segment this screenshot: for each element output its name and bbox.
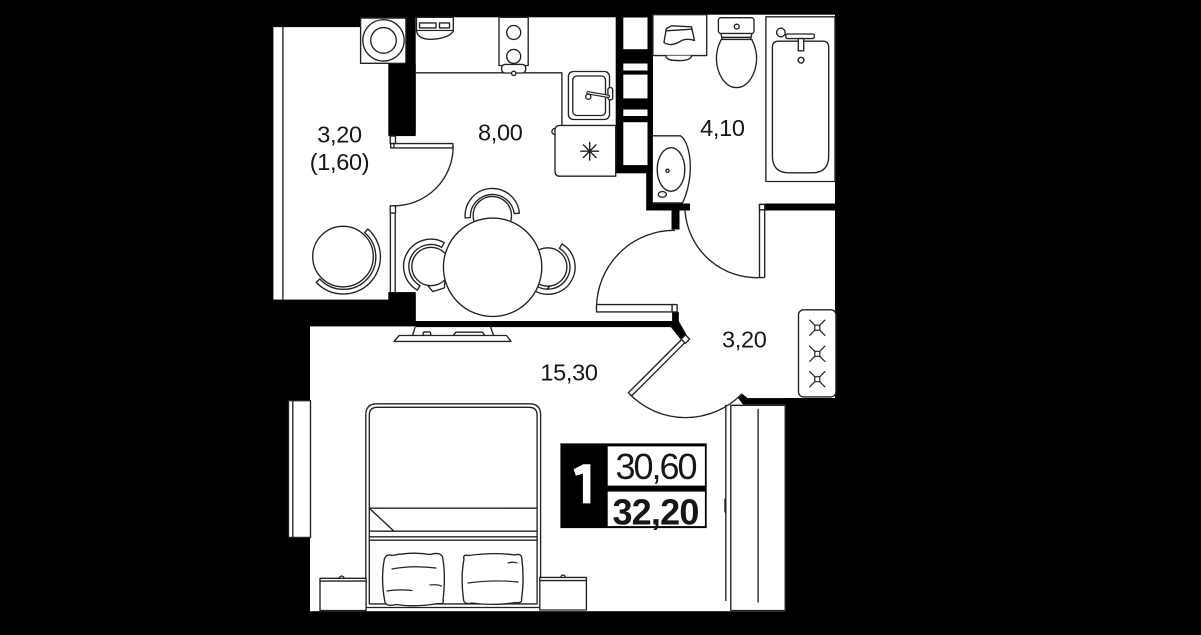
svg-text:32,20: 32,20: [612, 492, 698, 533]
svg-text:15,30: 15,30: [540, 360, 598, 386]
svg-text:3,20: 3,20: [317, 122, 362, 148]
svg-text:3,20: 3,20: [722, 327, 767, 353]
svg-text:30,60: 30,60: [615, 446, 696, 487]
svg-text:8,00: 8,00: [478, 119, 523, 145]
svg-text:(1,60): (1,60): [310, 149, 370, 175]
svg-text:4,10: 4,10: [700, 115, 745, 141]
